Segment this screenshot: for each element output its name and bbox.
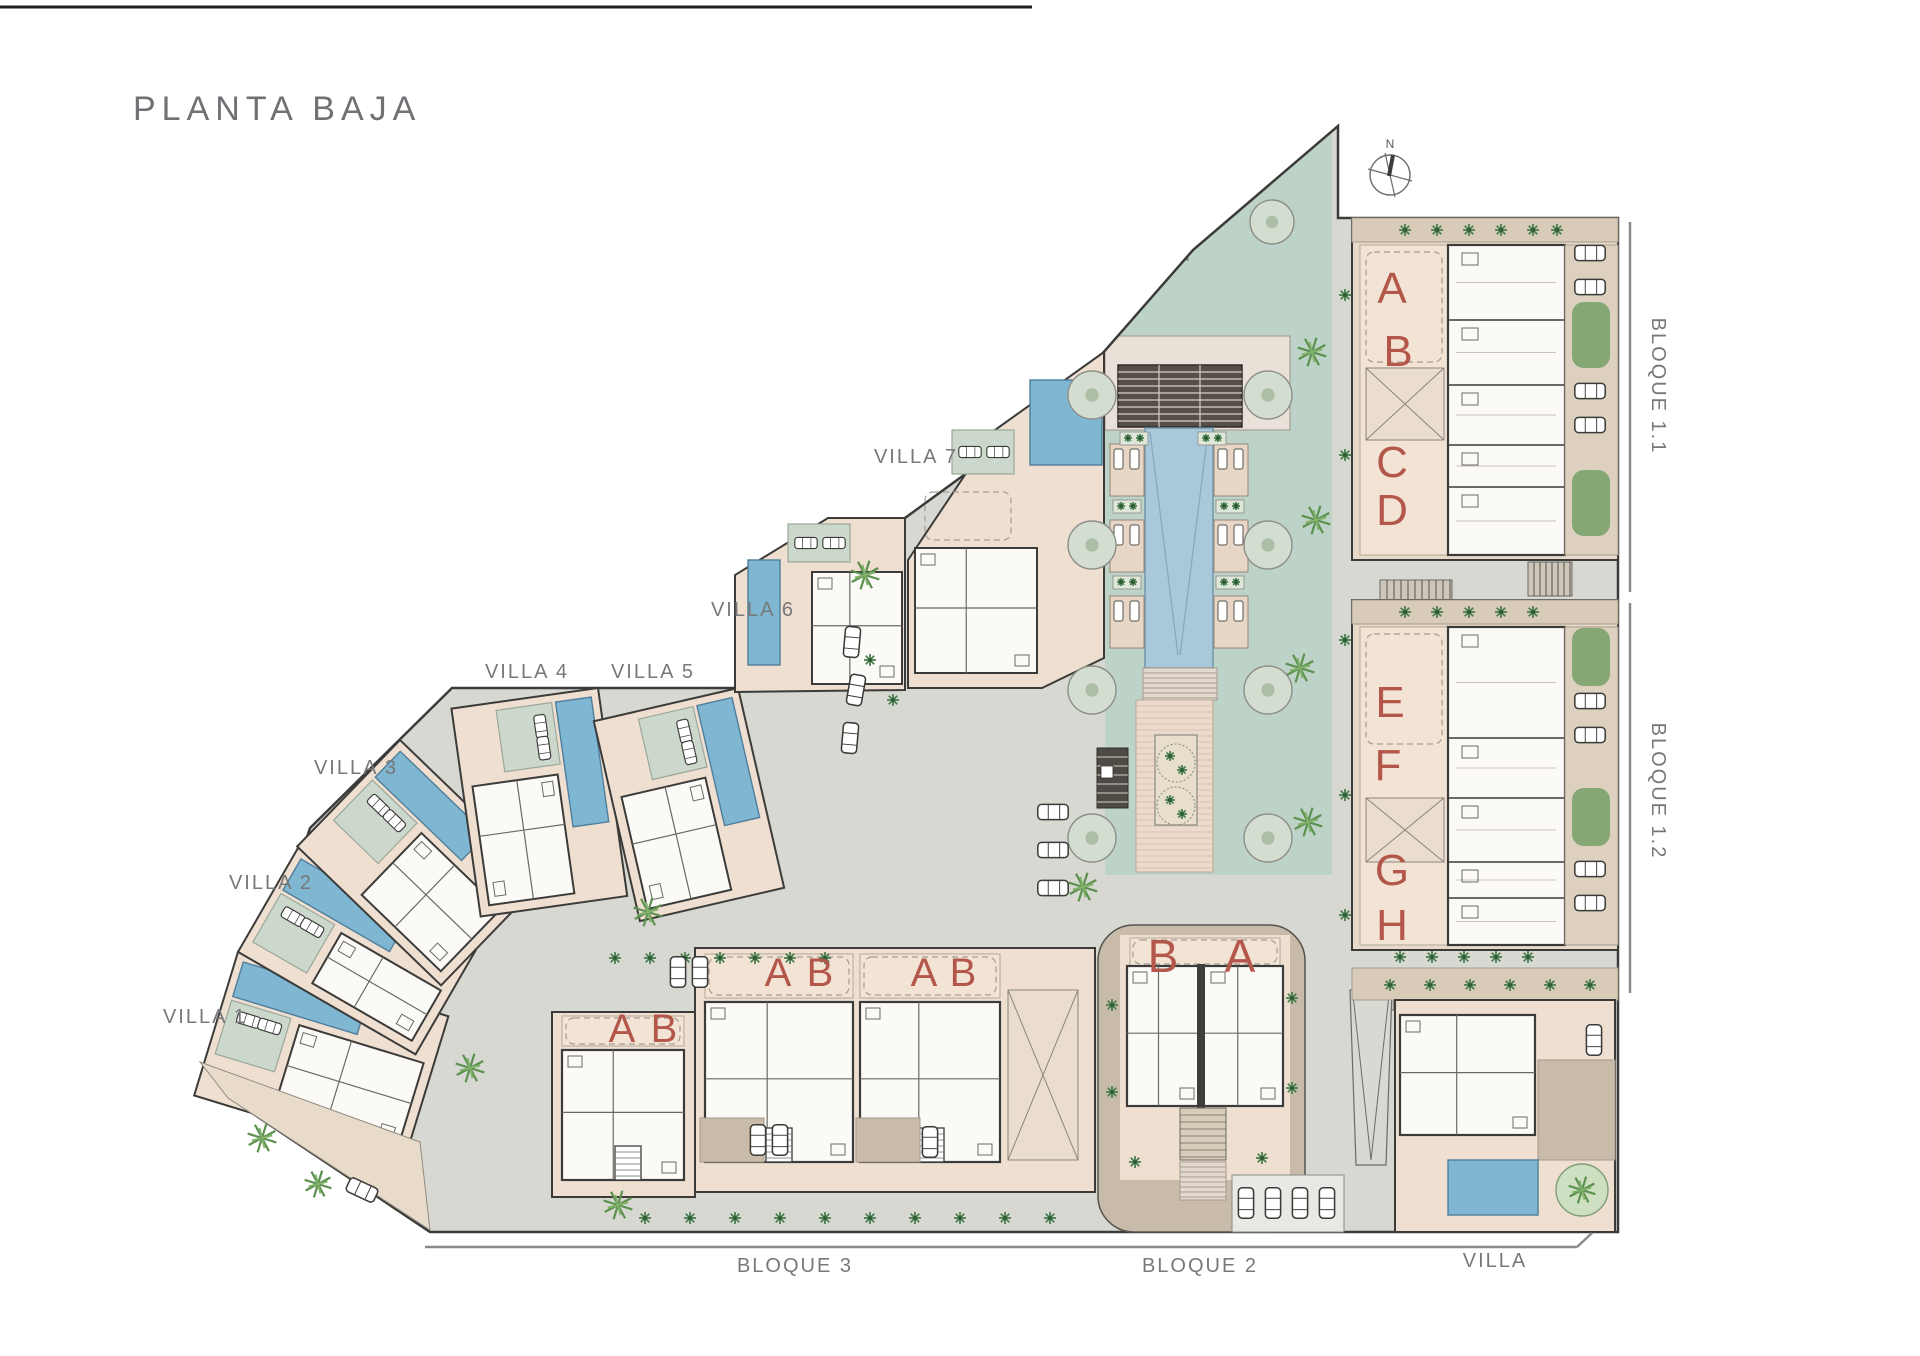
shrub-icon [1495,224,1507,236]
tree-icon [1244,521,1292,569]
shrub-center [1131,580,1135,584]
car-icon [1575,383,1605,398]
shrub-center [1290,1086,1294,1090]
car-body [533,714,548,738]
shrub-icon [1399,606,1411,618]
shrub-icon [1551,224,1563,236]
shrub-center [1110,1090,1114,1094]
car-body [1038,880,1068,895]
shrub-center [1343,638,1347,642]
label-villa-sur: VILLA [1463,1250,1527,1272]
label-bloque-1-2: BLOQUE 1.2 [1647,723,1669,860]
pergola [1118,365,1242,427]
tree-trunk [1261,538,1274,551]
shrub-icon [864,654,876,666]
north-compass-icon: N [1368,137,1412,197]
car-body [1319,1188,1334,1218]
shrub-icon [1044,1212,1056,1224]
shrub-icon [1232,578,1240,586]
sunbed-platform [1214,520,1248,572]
car-icon [1319,1188,1334,1218]
community-pool [1145,428,1213,668]
shrub-center [1119,580,1123,584]
label-villa-5: VILLA 5 [611,661,695,683]
car-body [959,446,981,457]
unit-letter-b2-A: A [1225,930,1256,982]
shrub-icon [1177,809,1187,819]
pool-bar [1097,748,1128,808]
shrub-icon [1527,224,1539,236]
shrub-center [1526,955,1530,959]
tree-icon [1020,236,1064,280]
shrub-center [1260,1156,1264,1160]
unit-letter-b2-B: B [1148,930,1179,982]
block-hedge-strip [1352,600,1618,624]
shrub-center [1531,610,1535,614]
shrub-icon [1202,434,1210,442]
shrub-center [753,956,757,960]
shrub-icon [609,952,621,964]
shrub-icon [714,952,726,964]
shrub-center [1398,955,1402,959]
bar-sink [1101,766,1113,778]
sun-lounger [1130,601,1139,621]
north-letter: N [1386,137,1395,151]
car-body [1575,861,1605,876]
ramp-body [1350,990,1392,1165]
hedge-row [1572,470,1610,536]
car-icon [1586,1025,1601,1055]
tree-trunk [1085,683,1098,696]
lightwell-x [1008,990,1078,1160]
unit-letter-D: D [1376,486,1408,535]
shrub-icon [1490,951,1502,963]
shrub-icon [1220,578,1228,586]
sun-lounger [1114,601,1123,621]
shrub-center [1531,228,1535,232]
shrub-icon [999,1212,1011,1224]
shrub-icon [774,1212,786,1224]
shrub-center [1204,436,1208,440]
tree-trunk [1085,831,1098,844]
shrub-icon [1129,578,1137,586]
tree-trunk [1266,216,1278,228]
shrub-center [1428,983,1432,987]
car-icon [537,736,552,760]
unit-letter-H: H [1376,901,1408,950]
shrub-center [958,1216,962,1220]
car-body [1575,417,1605,432]
shrub-icon [1286,1082,1298,1094]
shrub-center [1462,955,1466,959]
shrub-icon [1399,224,1411,236]
carport-rect [496,703,560,772]
sunbed-platform [1110,596,1144,648]
car-icon [1038,804,1068,819]
shrub-icon [1339,634,1351,646]
shrub-icon [1463,224,1475,236]
car-icon [1038,880,1068,895]
unit-letter-b3-A: A [765,951,792,995]
shrub-center [778,1216,782,1220]
car-body [1038,804,1068,819]
car-body [1586,1025,1601,1055]
unit-letter-B: B [1383,327,1412,376]
block-terraces [1360,627,1448,945]
shrub-center [1343,913,1347,917]
unit-letter-A: A [1377,264,1407,313]
car-body [692,957,707,987]
label-bloque-2: BLOQUE 2 [1142,1255,1258,1277]
tree-trunk [1036,252,1048,264]
shrub-center [1133,1160,1137,1164]
shrub-icon [1339,909,1351,921]
shrub-center [613,956,617,960]
tree-trunk [1261,831,1274,844]
car-body [987,446,1009,457]
label-bloque-1-1: BLOQUE 1.1 [1647,318,1669,455]
sun-lounger [1218,601,1227,621]
label-villa-1: VILLA 1 [163,1006,247,1028]
shrub-center [1467,610,1471,614]
block-hedge-strip [1352,218,1618,242]
palm-icon [248,1124,277,1153]
shrub-icon [1431,224,1443,236]
shrub-icon [1117,578,1125,586]
car-icon [1292,1188,1307,1218]
shrub-center [1290,996,1294,1000]
walkway-rect [1380,580,1452,602]
shrub-icon [684,1212,696,1224]
car-icon [1575,693,1605,708]
shrub-center [868,658,872,662]
car-icon [1575,895,1605,910]
label-villa-2: VILLA 2 [229,872,313,894]
shrub-icon [864,1212,876,1224]
hedge-row [1572,788,1610,846]
car-icon [795,537,817,548]
event-plaza [1136,700,1213,872]
shrub-center [1555,228,1559,232]
shaft-rect [1528,562,1572,596]
car-body [1292,1188,1307,1218]
shrub-center [868,1216,872,1220]
pergola-roof [1118,365,1242,427]
shrub-icon [1458,951,1470,963]
shrub-center [1468,983,1472,987]
shrub-center [643,1216,647,1220]
shrub-icon [1339,789,1351,801]
car-icon [843,626,861,658]
car-icon [922,1127,937,1157]
walkway [1380,580,1452,602]
equipment-box [1156,218,1188,260]
shrub-center [1003,1216,1007,1220]
unit-letter-b3-A: A [609,1007,636,1051]
shrub-icon [644,952,656,964]
shrub-center [1168,754,1172,758]
tree-icon [1068,521,1116,569]
car-body [750,1125,765,1155]
tree-icon [1068,371,1116,419]
villa-carport [496,703,560,772]
tree-trunk [1085,388,1098,401]
car-body [795,537,817,548]
shrub-icon [1339,449,1351,461]
shrub-icon [1424,979,1436,991]
label-villa-7: VILLA 7 [874,446,958,468]
car-icon [533,714,548,738]
car-icon [1038,842,1068,857]
b2-stair [1180,1108,1226,1160]
plaza-planter [1155,735,1197,825]
shrub-icon [729,1212,741,1224]
car-icon [1238,1188,1253,1218]
unit-letter-E: E [1375,678,1404,727]
car-icon [1575,417,1605,432]
shrub-center [1126,436,1130,440]
label-villa-3: VILLA 3 [314,757,398,779]
palm-icon [305,1171,332,1198]
shrub-icon [1256,1152,1268,1164]
sun-lounger [1234,449,1243,469]
shrub-center [1138,436,1142,440]
unit-letter-b3-A: A [911,951,938,995]
tree-icon [1068,666,1116,714]
shrub-center [1180,768,1184,772]
car-body [1575,279,1605,294]
shrub-center [1467,228,1471,232]
car-icon [772,1125,787,1155]
tree-icon [1250,200,1294,244]
car-icon [823,537,845,548]
page-title: PLANTA BAJA [133,90,421,128]
shrub-center [1435,610,1439,614]
sunbed-platform [1214,444,1248,496]
shrub-icon [1394,951,1406,963]
tree-icon [1244,814,1292,862]
shrub-icon [1129,502,1137,510]
shrub-center [1499,610,1503,614]
shrub-center [1168,798,1172,802]
sun-lounger [1114,449,1123,469]
car-icon [1575,861,1605,876]
car-body [1575,727,1605,742]
shrub-icon [1463,606,1475,618]
unit-letter-F: F [1375,741,1402,790]
unit-letter-b3-B: B [950,951,977,995]
villa-building [472,774,574,905]
sun-lounger [1130,525,1139,545]
car-icon [750,1125,765,1155]
shrub-center [1343,293,1347,297]
stair-rect [615,1146,641,1180]
car-body [1265,1188,1280,1218]
shrub-icon [819,1212,831,1224]
floor-plan-canvas: ABCDEFGHABABABBA PLANTA BAJA N VILLA 1 V… [0,0,1920,1356]
sunbed-platform [1110,444,1144,496]
car-body [1575,895,1605,910]
unit-letter-G: G [1375,846,1409,895]
car-body [823,537,845,548]
unit-letter-b3-B: B [651,1007,678,1051]
lightwell-x [1366,368,1444,440]
block-units [1448,245,1565,555]
tree-icon [1244,666,1292,714]
b2-party-wall [1197,964,1205,1108]
sun-lounger [1130,449,1139,469]
car-icon [1265,1188,1280,1218]
bottom-bracket-end [1577,1233,1592,1247]
car-body [670,957,685,987]
pool-equipment [1156,218,1188,260]
shrub-center [1508,983,1512,987]
shrub-center [1180,812,1184,816]
villa-building-rect [472,774,574,905]
car-body [1238,1188,1253,1218]
b3-patio [856,1118,920,1162]
tree-trunk [1261,388,1274,401]
shrub-icon [887,694,899,706]
shrub-icon [1544,979,1556,991]
shrub-icon [954,1212,966,1224]
shrub-center [718,956,722,960]
ramp [1350,990,1392,1165]
shrub-icon [1426,951,1438,963]
shrub-center [1499,228,1503,232]
shrub-icon [1220,502,1228,510]
car-body [772,1125,787,1155]
car-body [1038,842,1068,857]
shrub-center [913,1216,917,1220]
tree-canopy [1020,236,1064,280]
shrub-center [1343,453,1347,457]
shrub-icon [1165,795,1175,805]
car-icon [959,446,981,457]
villa-sur-deck [1538,1060,1615,1160]
shrub-center [1119,504,1123,508]
shrub-center [1548,983,1552,987]
shrub-icon [1584,979,1596,991]
car-body [1575,693,1605,708]
tree-icon [1068,814,1116,862]
shrub-icon [1232,502,1240,510]
car-body [1575,245,1605,260]
shrub-icon [909,1212,921,1224]
tree-trunk [1261,683,1274,696]
shrub-icon [1464,979,1476,991]
shrub-center [1343,793,1347,797]
shrub-icon [1117,502,1125,510]
shrub-center [1388,983,1392,987]
unit-letter-C: C [1376,438,1408,487]
label-villa-6: VILLA 6 [711,599,795,621]
tree-icon [1244,371,1292,419]
shrub-center [891,698,895,702]
stair-core [615,1146,641,1180]
shrub-icon [1504,979,1516,991]
car-icon [841,722,859,754]
shrub-icon [749,952,761,964]
car-body [841,722,859,754]
car-body [537,736,552,760]
car-icon [987,446,1009,457]
shrub-center [1216,436,1220,440]
shrub-center [1430,955,1434,959]
villa-building-rect [915,548,1037,673]
car-icon [692,957,707,987]
shrub-icon [1165,751,1175,761]
shrub-icon [1129,1156,1141,1168]
label-bloque-3: BLOQUE 3 [737,1255,853,1277]
shrub-center [1222,504,1226,508]
car-icon [1575,727,1605,742]
shrub-icon [639,1212,651,1224]
car-body [1575,383,1605,398]
shrub-icon [1527,606,1539,618]
shrub-icon [1124,434,1132,442]
shrub-icon [1339,289,1351,301]
shrub-center [1588,983,1592,987]
shrub-center [823,1216,827,1220]
sun-lounger [1234,525,1243,545]
shrub-center [1403,228,1407,232]
shrub-icon [1384,979,1396,991]
shrub-center [733,1216,737,1220]
shrub-center [1131,504,1135,508]
sun-lounger [1234,601,1243,621]
shrub-icon [1136,434,1144,442]
shrub-icon [1495,606,1507,618]
label-villa-4: VILLA 4 [485,661,569,683]
car-icon [670,957,685,987]
shrub-icon [1286,992,1298,1004]
hedge-row [1572,628,1610,686]
shrub-icon [1214,434,1222,442]
unit-letter-b3-B: B [807,951,834,995]
shrub-center [1435,228,1439,232]
shrub-center [1222,580,1226,584]
shrub-icon [1106,999,1118,1011]
shrub-icon [1177,765,1187,775]
b2-steps [1180,1162,1226,1200]
shrub-icon [1106,1086,1118,1098]
sun-lounger [1218,449,1227,469]
shrub-icon [1522,951,1534,963]
shrub-center [1403,610,1407,614]
car-icon [1575,279,1605,294]
car-body [843,626,861,658]
hedge-row [1572,302,1610,368]
shrub-center [1110,1003,1114,1007]
shrub-center [1048,1216,1052,1220]
stair-shaft [1528,562,1572,596]
pool-steps [1143,668,1217,700]
car-body [922,1127,937,1157]
shrub-center [688,1216,692,1220]
shrub-center [1234,580,1238,584]
shrub-icon [1431,606,1443,618]
shrub-center [1234,504,1238,508]
shrub-center [1494,955,1498,959]
sun-lounger [1218,525,1227,545]
site-plan-page: ABCDEFGHABABABBA PLANTA BAJA N VILLA 1 V… [0,0,1920,1356]
tree-trunk [1085,538,1098,551]
villa-sur-pool [1448,1160,1538,1215]
shrub-center [648,956,652,960]
sunbed-platform [1214,596,1248,648]
car-icon [1575,245,1605,260]
